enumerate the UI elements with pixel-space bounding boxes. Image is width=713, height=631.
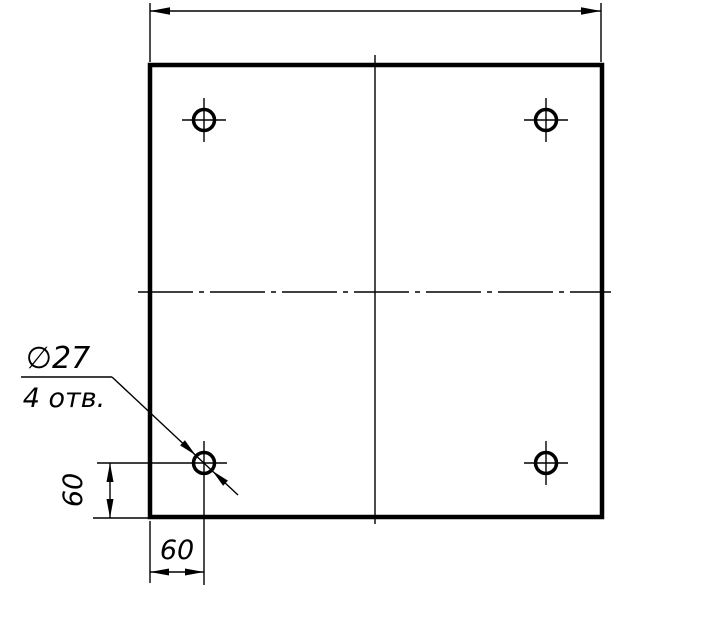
plate-drawing-svg: 60 60 ∅27 4 отв. xyxy=(0,0,713,631)
plate-outline xyxy=(150,65,602,517)
arrowhead-down xyxy=(107,499,114,518)
hole-count-label: 4 отв. xyxy=(23,383,106,414)
drawing-canvas: 60 60 ∅27 4 отв. xyxy=(0,0,713,631)
plate-rect xyxy=(150,65,602,517)
vertical-dimension-60: 60 xyxy=(58,463,148,518)
dimension-value-vertical: 60 xyxy=(58,473,89,507)
hole-bottom-right xyxy=(524,441,568,485)
hole-top-right xyxy=(524,98,568,142)
dimension-value-horizontal: 60 xyxy=(160,535,194,566)
hole-diameter-label: ∅27 xyxy=(26,341,90,376)
arrowhead-right xyxy=(185,569,204,576)
arrowhead-left xyxy=(150,7,170,14)
arrowhead-up xyxy=(107,463,114,482)
top-dimension xyxy=(150,3,601,62)
hole-top-left xyxy=(182,98,226,142)
arrowhead-right xyxy=(581,7,601,14)
horizontal-dimension-60: 60 xyxy=(150,521,204,583)
arrowhead-left xyxy=(150,569,169,576)
